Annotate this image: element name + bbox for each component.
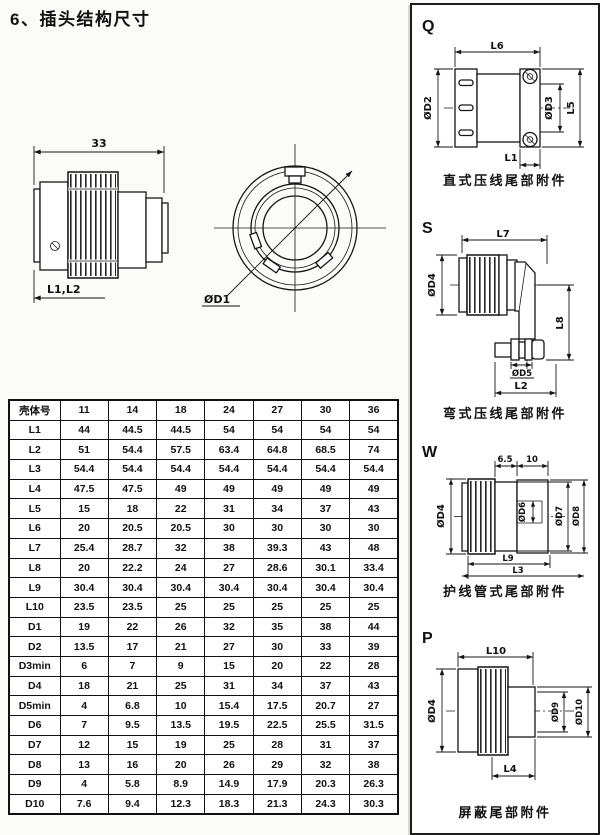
dimension-value: 6 [60, 656, 108, 676]
page-title: 6、插头结构尺寸 [10, 5, 150, 30]
header-shell-size: 30 [301, 400, 349, 420]
dimension-value: 43 [350, 676, 398, 696]
dimension-value: 22.2 [108, 558, 156, 578]
dimension-value: 28.7 [108, 538, 156, 558]
header-shell-col: 壳体号 [9, 400, 60, 420]
dimension-value: 25 [301, 597, 349, 617]
table-row: L25154.457.563.464.868.574 [9, 440, 398, 460]
dimension-value: 44 [350, 617, 398, 637]
dimension-value: 34 [253, 499, 301, 519]
dimension-value: 28 [253, 735, 301, 755]
dimension-value: 29 [253, 755, 301, 775]
dimension-value: 38 [350, 755, 398, 775]
front-view-drawing: ØD1 [202, 131, 398, 315]
dimension-value: 22 [157, 499, 205, 519]
dimension-value: 33 [301, 637, 349, 657]
dimension-value: 30.4 [301, 578, 349, 598]
side-view-drawing: 33 L1,L2 [25, 131, 215, 311]
plug-body [34, 172, 168, 278]
dimension-value: 37 [350, 735, 398, 755]
caption-bent: 弯式压线尾部附件 [412, 403, 598, 422]
dimension-value: 15 [60, 499, 108, 519]
dimension-value: 47.5 [60, 479, 108, 499]
dimension-value: 12.3 [157, 794, 205, 814]
dimension-value: 68.5 [301, 440, 349, 460]
dimension-value: 39 [350, 637, 398, 657]
table-row: D679.513.519.522.525.531.5 [9, 716, 398, 736]
dimension-value: 32 [205, 617, 253, 637]
s-dim-d4: ØD4 [426, 273, 438, 297]
dimension-value: 54 [205, 420, 253, 440]
row-label: L1 [9, 420, 60, 440]
dimension-value: 32 [157, 538, 205, 558]
dimension-value: 30.1 [301, 558, 349, 578]
table-row: D119222632353844 [9, 617, 398, 637]
dimension-value: 30 [253, 637, 301, 657]
row-label: D3min [9, 656, 60, 676]
shield-body [458, 667, 535, 755]
dimension-value: 8.9 [157, 775, 205, 795]
dimension-value: 31 [205, 499, 253, 519]
dimension-value: 22.5 [253, 716, 301, 736]
dimension-value: 22 [108, 617, 156, 637]
w-dim-l3: L3 [512, 566, 523, 576]
dimension-value: 7 [108, 656, 156, 676]
dimension-value: 9.5 [108, 716, 156, 736]
header-shell-size: 27 [253, 400, 301, 420]
dimension-value: 20 [60, 558, 108, 578]
w-drawing: 6.5 10 ØD4 ØD6 ØD7 ØD8 L9 L3 [420, 452, 600, 584]
dimension-value: 20.5 [108, 519, 156, 539]
dimension-value: 25 [253, 597, 301, 617]
header-shell-size: 24 [205, 400, 253, 420]
dimension-value: 13.5 [60, 637, 108, 657]
dimension-value: 23.5 [108, 597, 156, 617]
conduit-body [462, 479, 548, 554]
dim-d1: ØD1 [202, 171, 352, 306]
dimension-value: 20 [253, 656, 301, 676]
dimension-value: 54.4 [108, 460, 156, 480]
dimension-value: 44.5 [157, 420, 205, 440]
dimension-value: 54.4 [253, 460, 301, 480]
s-dim-l7: L7 [496, 229, 509, 240]
accessories-panel: Q L6 ØD2 ØD3 [410, 3, 600, 835]
dimension-value: 14.9 [205, 775, 253, 795]
table-row: D712151925283137 [9, 735, 398, 755]
dim-l1l2-label: L1,L2 [47, 283, 81, 296]
dimension-value: 54.4 [108, 440, 156, 460]
dimension-value: 22 [301, 656, 349, 676]
row-label: D7 [9, 735, 60, 755]
dimension-value: 10 [157, 696, 205, 716]
dimension-value: 30 [253, 519, 301, 539]
dimension-value: 5.8 [108, 775, 156, 795]
dimension-value: 18 [108, 499, 156, 519]
dimension-value: 27 [350, 696, 398, 716]
dimension-value: 20 [60, 519, 108, 539]
table-row: L725.428.7323839.34348 [9, 538, 398, 558]
dimension-value: 24 [157, 558, 205, 578]
dim-d1-label: ØD1 [204, 293, 230, 306]
dimension-value: 51 [60, 440, 108, 460]
row-label: L2 [9, 440, 60, 460]
row-label: L6 [9, 519, 60, 539]
table-row: D813162026293238 [9, 755, 398, 775]
table-row: L447.547.54949494949 [9, 479, 398, 499]
dimension-value: 23.5 [60, 597, 108, 617]
dimension-value: 25 [157, 597, 205, 617]
elbow [515, 262, 535, 339]
dimension-value: 44.5 [108, 420, 156, 440]
p-dim-d9: ØD9 [550, 702, 561, 722]
dimension-value: 38 [205, 538, 253, 558]
row-label: L4 [9, 479, 60, 499]
cable-fitting [495, 339, 544, 360]
dimension-value: 9 [157, 656, 205, 676]
dimension-value: 24.3 [301, 794, 349, 814]
row-label: D1 [9, 617, 60, 637]
q-dim-d3: ØD3 [543, 96, 555, 120]
dimension-value: 44 [60, 420, 108, 440]
dimension-value: 43 [350, 499, 398, 519]
row-label: D5min [9, 696, 60, 716]
dimension-value: 20 [157, 755, 205, 775]
dimension-value: 20.7 [301, 696, 349, 716]
dimension-value: 17.5 [253, 696, 301, 716]
dimension-value: 35 [253, 617, 301, 637]
dimension-value: 7 [60, 716, 108, 736]
row-label: D6 [9, 716, 60, 736]
dimension-value: 25 [350, 597, 398, 617]
q-dim-l1: L1 [504, 153, 517, 164]
table-row: D3min67915202228 [9, 656, 398, 676]
table-row: L1023.523.52525252525 [9, 597, 398, 617]
header-shell-size: 18 [157, 400, 205, 420]
q-dim-l6: L6 [490, 41, 503, 52]
dimension-value: 49 [350, 479, 398, 499]
dimension-value: 4 [60, 696, 108, 716]
dimension-value: 30 [301, 519, 349, 539]
dimension-value: 32 [301, 755, 349, 775]
table-row: D5min46.81015.417.520.727 [9, 696, 398, 716]
dimension-value: 15 [205, 656, 253, 676]
dimension-value: 15 [108, 735, 156, 755]
dimension-value: 63.4 [205, 440, 253, 460]
dimension-value: 30.4 [60, 578, 108, 598]
dimension-value: 26.3 [350, 775, 398, 795]
dimension-value: 16 [108, 755, 156, 775]
dimension-value: 30 [205, 519, 253, 539]
dimension-value: 31 [301, 735, 349, 755]
q-drawing: L6 ØD2 ØD3 L5 L1 [422, 39, 592, 177]
dimension-value: 21.3 [253, 794, 301, 814]
dimension-table: 壳体号11141824273036L14444.544.554545454L25… [8, 399, 399, 815]
dimension-value: 28.6 [253, 558, 301, 578]
dimension-value: 6.8 [108, 696, 156, 716]
w-dim-l9: L9 [502, 554, 513, 564]
dimension-value: 31.5 [350, 716, 398, 736]
dimension-value: 17.9 [253, 775, 301, 795]
p-dim-l10: L10 [486, 646, 506, 657]
caption-straight: 直式压线尾部附件 [412, 170, 598, 189]
dimension-value: 33.4 [350, 558, 398, 578]
w-dim-d8: ØD8 [571, 506, 582, 526]
w-dim-65: 6.5 [497, 455, 512, 465]
table-row: L62020.520.530303030 [9, 519, 398, 539]
row-label: L8 [9, 558, 60, 578]
dimension-value: 74 [350, 440, 398, 460]
dimension-value: 64.8 [253, 440, 301, 460]
dimension-value: 54.4 [301, 460, 349, 480]
dimension-value: 27 [205, 558, 253, 578]
dimension-value: 25.4 [60, 538, 108, 558]
row-label: L3 [9, 460, 60, 480]
row-label: L9 [9, 578, 60, 598]
dimension-value: 25 [205, 735, 253, 755]
coupling-nut [455, 69, 477, 147]
dimension-value: 19.5 [205, 716, 253, 736]
caption-conduit: 护线管式尾部附件 [412, 581, 598, 600]
table-row: D213.5172127303339 [9, 637, 398, 657]
dimension-value: 17 [108, 637, 156, 657]
dimension-value: 49 [253, 479, 301, 499]
row-label: L5 [9, 499, 60, 519]
dimension-value: 13.5 [157, 716, 205, 736]
s-dim-l2: L2 [514, 381, 527, 392]
s-dim-d5: ØD5 [512, 368, 532, 379]
dimension-value: 19 [157, 735, 205, 755]
coupling-body [459, 255, 517, 315]
dimension-value: 21 [108, 676, 156, 696]
dimension-value: 27 [205, 637, 253, 657]
dimension-value: 43 [301, 538, 349, 558]
table-row: L515182231343743 [9, 499, 398, 519]
dimension-value: 39.3 [253, 538, 301, 558]
q-dim-l5: L5 [566, 101, 577, 114]
w-dim-10: 10 [526, 455, 538, 465]
dimension-value: 30.4 [350, 578, 398, 598]
dimension-value: 30.4 [205, 578, 253, 598]
p-drawing: L10 ØD4 ØD9 ØD10 L4 [422, 647, 600, 797]
table-row: L82022.2242728.630.133.4 [9, 558, 398, 578]
p-dim-l4: L4 [503, 764, 516, 775]
table-row: L354.454.454.454.454.454.454.4 [9, 460, 398, 480]
dimension-value: 30 [350, 519, 398, 539]
dimension-value: 30.4 [108, 578, 156, 598]
dimension-value: 54.4 [350, 460, 398, 480]
dimension-value: 19 [60, 617, 108, 637]
table-row: D107.69.412.318.321.324.330.3 [9, 794, 398, 814]
dimension-value: 57.5 [157, 440, 205, 460]
dimension-value: 30.3 [350, 794, 398, 814]
table-header-row: 壳体号11141824273036 [9, 400, 398, 420]
dimension-value: 37 [301, 676, 349, 696]
dimension-value: 18.3 [205, 794, 253, 814]
dimension-value: 54 [301, 420, 349, 440]
row-label: D8 [9, 755, 60, 775]
dimension-value: 12 [60, 735, 108, 755]
p-dim-d4: ØD4 [426, 699, 438, 723]
dimension-value: 54.4 [157, 460, 205, 480]
table-row: D945.88.914.917.920.326.3 [9, 775, 398, 795]
header-shell-size: 36 [350, 400, 398, 420]
row-label: D10 [9, 794, 60, 814]
table-row: L930.430.430.430.430.430.430.4 [9, 578, 398, 598]
row-label: L7 [9, 538, 60, 558]
dimension-value: 25 [205, 597, 253, 617]
row-label: D9 [9, 775, 60, 795]
dimension-value: 37 [301, 499, 349, 519]
dimension-value: 18 [60, 676, 108, 696]
dimension-value: 34 [253, 676, 301, 696]
dimension-value: 20.5 [157, 519, 205, 539]
header-shell-size: 14 [108, 400, 156, 420]
dimension-value: 7.6 [60, 794, 108, 814]
w-dim-d7: ØD7 [554, 506, 565, 526]
dim-33-label: 33 [91, 137, 106, 150]
dimension-value: 26 [157, 617, 205, 637]
row-label: D2 [9, 637, 60, 657]
dimension-value: 26 [205, 755, 253, 775]
dimension-value: 48 [350, 538, 398, 558]
dimension-value: 54 [253, 420, 301, 440]
s-drawing: L7 ØD4 L8 ØD5 L2 [422, 212, 594, 402]
dimension-value: 31 [205, 676, 253, 696]
dimension-value: 21 [157, 637, 205, 657]
dimension-value: 54.4 [60, 460, 108, 480]
header-shell-size: 11 [60, 400, 108, 420]
dimension-value: 25 [157, 676, 205, 696]
row-label: L10 [9, 597, 60, 617]
dimension-value: 49 [157, 479, 205, 499]
table-row: D418212531343743 [9, 676, 398, 696]
s-dim-l8: L8 [555, 316, 566, 329]
dimension-value: 30.4 [157, 578, 205, 598]
section-letter-q: Q [422, 18, 434, 36]
dimension-value: 47.5 [108, 479, 156, 499]
dimension-value: 38 [301, 617, 349, 637]
dimension-value: 54 [350, 420, 398, 440]
p-dim-d10: ØD10 [574, 699, 585, 725]
dimension-value: 28 [350, 656, 398, 676]
dimension-value: 25.5 [301, 716, 349, 736]
dimension-value: 15.4 [205, 696, 253, 716]
q-dim-d2: ØD2 [422, 96, 434, 120]
dimension-value: 54.4 [205, 460, 253, 480]
table-row: L14444.544.554545454 [9, 420, 398, 440]
dimension-value: 13 [60, 755, 108, 775]
dimension-value: 9.4 [108, 794, 156, 814]
w-dim-d4: ØD4 [435, 504, 447, 528]
section-letter-p: P [422, 630, 433, 648]
w-dim-d6: ØD6 [517, 502, 528, 522]
dimension-value: 30.4 [253, 578, 301, 598]
row-label: D4 [9, 676, 60, 696]
caption-shielded: 屏蔽尾部附件 [412, 802, 598, 821]
dimension-value: 20.3 [301, 775, 349, 795]
dimension-value: 49 [205, 479, 253, 499]
dimension-value: 4 [60, 775, 108, 795]
dimension-value: 49 [301, 479, 349, 499]
